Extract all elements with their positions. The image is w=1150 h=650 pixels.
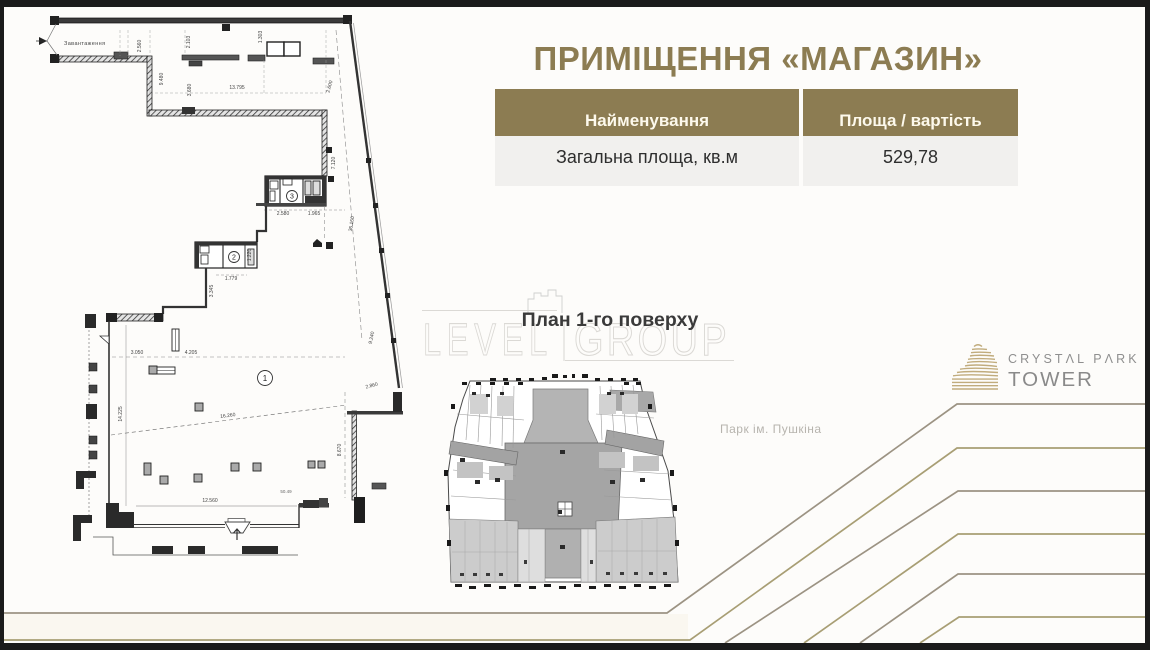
svg-text:TOWER: TOWER (1008, 368, 1094, 391)
svg-text:CRYSTΛL PΛRK: CRYSTΛL PΛRK (1008, 352, 1140, 366)
